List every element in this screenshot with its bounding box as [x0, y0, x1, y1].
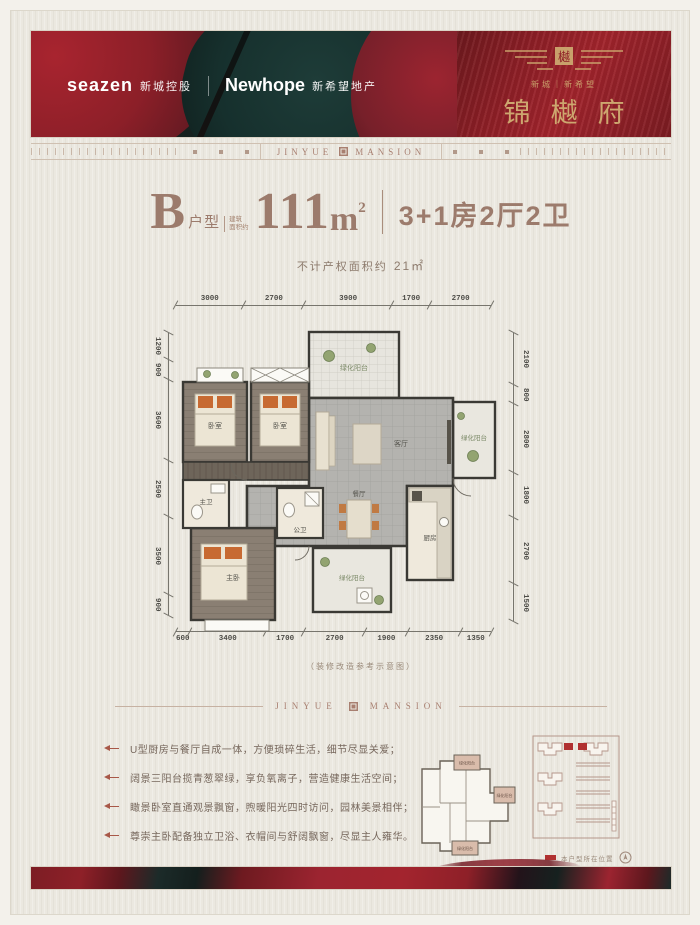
plan-caption: （装修改造参考示意图） [11, 661, 700, 672]
lattice-window [251, 368, 309, 382]
section-divider: JINYUE MANSION [11, 701, 700, 711]
title-divider [382, 190, 383, 234]
dimensions-top: 3000 2700 3900 1700 2700 [176, 295, 491, 306]
tick-pattern [31, 148, 182, 155]
room-label: 客厅 [394, 439, 408, 448]
room-label: 公卫 [294, 526, 308, 534]
highlight-building [564, 743, 573, 750]
top-banner: seazen 新城控股 Newhope 新希望地产 樾 [31, 31, 671, 137]
decorative-ribbon: JINYUE MANSION [31, 143, 671, 160]
feature-item: U型厨房与餐厅自成一体，方便琐碎生活，细节尽显关爱； [106, 741, 414, 756]
brand-emblem-icon: 樾 [499, 41, 629, 77]
developer-logos: seazen 新城控股 Newhope 新希望地产 [67, 75, 377, 96]
bottom-banner [31, 867, 671, 889]
feature-item: 尊崇主卧配备独立卫浴、衣帽间与舒阔飘窗，尽显主人雍华。 [106, 828, 414, 843]
unit-title: B 户型 建筑 面积约 111 m2 3+1房2厅2卫 [11, 189, 700, 236]
keyplan-balcony-label: 绿化阳台 [497, 792, 513, 798]
room-label: 卧室 [273, 421, 287, 430]
coffee-table [353, 424, 381, 464]
toilet [284, 503, 295, 517]
unit-type-letter: B [150, 189, 185, 236]
ribbon-title: JINYUE MANSION [260, 144, 443, 159]
divider-line [115, 706, 263, 707]
tick-pattern [520, 148, 671, 155]
brand-name: 锦樾府 [457, 91, 671, 130]
divider-text-left: JINYUE [275, 701, 337, 711]
room-label: 卧室 [208, 421, 222, 430]
ribbon-title-right: MANSION [355, 147, 425, 157]
bed [201, 544, 247, 600]
divider-line [459, 706, 607, 707]
arrow-icon [106, 777, 119, 778]
seal-dots [182, 150, 260, 154]
unit-type-word: 户型 [188, 211, 220, 232]
feature-list: U型厨房与餐厅自成一体，方便琐碎生活，细节尽显关爱； 阔景三阳台揽青葱翠绿，享负… [106, 741, 414, 857]
tv [447, 420, 451, 464]
floorplan-drawing: 绿化阳台 卧室 卧室 客厅 绿化阳台 主卫 公卫 餐厅 厨房 主卧 绿化阳台 [161, 316, 506, 631]
room-label: 绿化阳台 [339, 573, 365, 582]
dimensions-right: 2100 800 2800 1800 2700 1500 [513, 333, 533, 621]
brand-subtitle: 新城｜新希望 [457, 79, 671, 90]
divider-text-right: MANSION [370, 701, 447, 711]
highlight-building [578, 743, 587, 750]
sofa [316, 412, 335, 470]
area-note: 建筑 面积约 [224, 216, 249, 232]
room-label: 绿化阳台 [340, 363, 368, 372]
logo-divider [208, 76, 209, 96]
washer [357, 588, 372, 603]
room-label: 厨房 [424, 533, 437, 542]
room-label: 餐厅 [353, 489, 367, 498]
siteplan-map [532, 735, 620, 839]
room-label: 主卧 [226, 573, 240, 582]
keyplan-balcony-label: 绿化阳台 [459, 760, 475, 766]
feature-item: 阔景三阳台揽青葱翠绿，享负氧离子，营造健康生活空间； [106, 770, 414, 785]
bay-window [205, 620, 269, 631]
compass-icon [619, 851, 632, 864]
room-label: 绿化阳台 [461, 433, 487, 442]
arrow-icon [106, 806, 119, 807]
poster-page: seazen 新城控股 Newhope 新希望地产 樾 [0, 0, 700, 925]
area-value: 111 [255, 189, 330, 236]
wardrobe [183, 462, 309, 480]
unit-keyplan: 绿化阳台 绿化阳台 绿化阳台 [414, 747, 522, 857]
keyplan-balcony-label: 绿化阳台 [457, 845, 473, 851]
toilet [192, 505, 203, 519]
feature-item: 瞰景卧室直通观景飘窗，煦暖阳光四时访问，园林美景相伴； [106, 799, 414, 814]
room-label: 主卫 [200, 497, 214, 506]
svg-text:樾: 樾 [558, 49, 570, 64]
legend-label: 本户型所在位置 [561, 853, 614, 863]
seal-dots [442, 150, 520, 154]
newhope-logo-cn: 新希望地产 [312, 78, 377, 94]
banner-artwork: seazen 新城控股 Newhope 新希望地产 [31, 31, 457, 137]
seal-icon [349, 702, 358, 711]
area-subtitle: 不计产权面积约21㎡ [11, 257, 700, 274]
brand-panel: 樾 新城｜新希望 锦樾府 [457, 31, 671, 137]
sink [211, 484, 225, 493]
arrow-icon [106, 835, 119, 836]
dimensions-bottom: 600 3400 1700 2700 1900 2350 1350 [176, 631, 491, 642]
bed [195, 394, 235, 446]
bed [260, 394, 300, 446]
seazen-logo-cn: 新城控股 [140, 78, 192, 94]
seazen-logo: seazen [67, 75, 133, 96]
newhope-logo: Newhope [225, 75, 305, 96]
poster-canvas: seazen 新城控股 Newhope 新希望地产 樾 [10, 10, 690, 915]
ribbon-title-left: JINYUE [277, 147, 333, 157]
arrow-icon [106, 748, 119, 749]
room-count: 3+1房2厅2卫 [399, 194, 572, 233]
seal-icon [339, 147, 348, 156]
area-unit: m2 [330, 202, 366, 236]
